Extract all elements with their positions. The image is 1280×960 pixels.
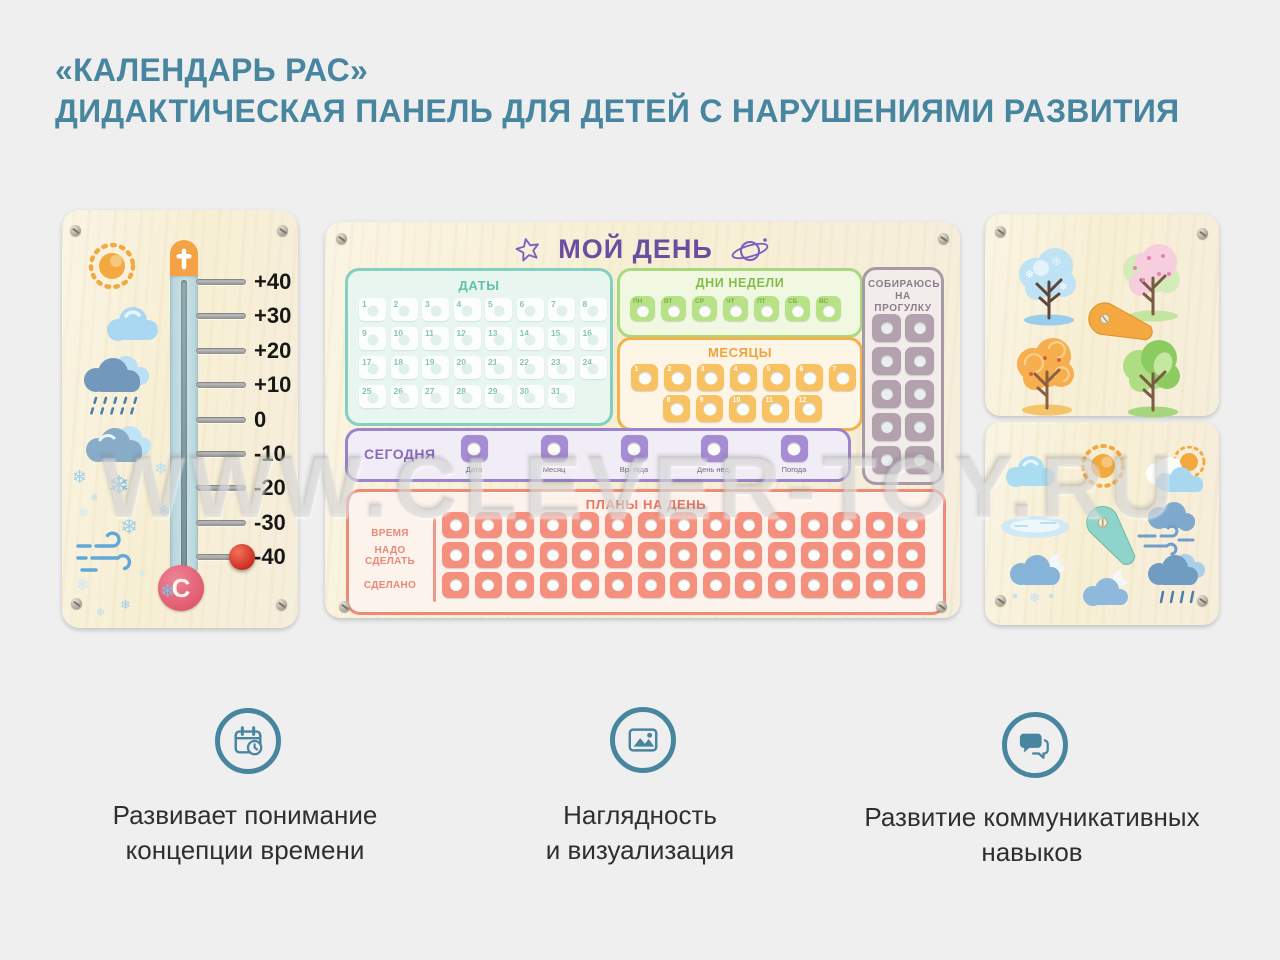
snowflake-icon: ❄ (78, 506, 89, 519)
peg-hole (547, 549, 559, 561)
plans-slot-r1c11[interactable] (768, 512, 795, 538)
month-tile-3[interactable]: 3 (697, 364, 724, 391)
plans-slot-r2c3[interactable] (507, 542, 534, 568)
peg-hole (881, 388, 893, 400)
snowflake-icon: ❄ (96, 608, 105, 619)
date-tile-30[interactable]: 30 (517, 385, 544, 408)
date-tile-31[interactable]: 31 (548, 385, 575, 408)
plans-slot-r2c13[interactable] (833, 542, 860, 568)
peg-hole (803, 371, 816, 384)
today-label: СЕГОДНЯ (364, 446, 436, 462)
date-tile-13[interactable]: 13 (485, 327, 512, 350)
peg-hole (808, 549, 820, 561)
peg-hole (367, 305, 378, 316)
snowflake-icon: ❄ (76, 578, 89, 594)
plans-row-label-time: ВРЕМЯ (354, 528, 426, 539)
dates-grid: 1234567891011121314151617181920212223242… (359, 298, 607, 408)
peg-hole (430, 392, 441, 403)
peg-hole (873, 579, 885, 591)
weekday-tile-ВТ[interactable]: ВТ (661, 296, 686, 321)
date-tile-20[interactable]: 20 (454, 356, 481, 379)
date-tile-6[interactable]: 6 (517, 298, 544, 321)
peg-hole (547, 519, 559, 531)
peg-hole (841, 519, 853, 531)
snowflake-icon: ❄ (138, 570, 146, 580)
peg-hole (399, 334, 410, 345)
plans-slot-r2c15[interactable] (898, 542, 925, 568)
months-row-2: 89101112 (663, 395, 822, 422)
plans-row-label-todo: НАДО СДЕЛАТЬ (354, 545, 426, 567)
snow-night-cloud-icon: ❄ (1001, 550, 1071, 606)
month-number: 1 (635, 366, 639, 373)
peg-hole (873, 549, 885, 561)
peg-hole (743, 519, 755, 531)
plans-slot-r3c4[interactable] (540, 572, 567, 598)
board-title: МОЙ ДЕНЬ (558, 234, 713, 265)
peg-hole (462, 334, 473, 345)
month-tile-9[interactable]: 9 (696, 395, 723, 422)
month-tile-8[interactable]: 8 (663, 395, 690, 422)
plans-slot-r2c14[interactable] (866, 542, 893, 568)
thermo-scale-label: -40 (254, 544, 302, 570)
walk-slot-1[interactable] (872, 314, 901, 342)
date-tile-27[interactable]: 27 (422, 385, 449, 408)
month-tile-4[interactable]: 4 (730, 364, 757, 391)
weekday-tile-ЧТ[interactable]: ЧТ (723, 296, 748, 321)
peg-hole (802, 402, 815, 415)
peg-hole (914, 388, 926, 400)
date-tile-10[interactable]: 10 (391, 327, 418, 350)
date-tile-19[interactable]: 19 (422, 356, 449, 379)
date-tile-8[interactable]: 8 (580, 298, 607, 321)
plans-slot-r2c1[interactable] (442, 542, 469, 568)
peg-hole (678, 519, 690, 531)
screw (276, 599, 287, 610)
thermo-tick (196, 451, 246, 457)
peg-hole (775, 549, 787, 561)
peg-hole (914, 322, 926, 334)
today-field-label: День нед. (683, 465, 745, 474)
month-number: 5 (767, 366, 771, 373)
thermo-tick (196, 520, 246, 526)
month-tile-7[interactable]: 7 (829, 364, 856, 391)
date-tile-28[interactable]: 28 (454, 385, 481, 408)
plans-slot-r3c11[interactable] (768, 572, 795, 598)
cloud-icon (102, 302, 162, 344)
thermo-tick (196, 348, 246, 354)
walk-label: СОБИРАЮСЬ НА ПРОГУЛКУ (865, 279, 941, 315)
peg-hole (792, 305, 804, 317)
peg-hole (708, 442, 721, 455)
plans-slot-r2c7[interactable] (638, 542, 665, 568)
page-title-line2: ДИДАКТИЧЕСКАЯ ПАНЕЛЬ ДЛЯ ДЕТЕЙ С НАРУШЕН… (55, 91, 1179, 132)
plans-slot-r1c13[interactable] (833, 512, 860, 538)
weekday-tile-ВС[interactable]: ВС (816, 296, 841, 321)
snowflake-icon: ❄ (154, 462, 167, 478)
peg-hole (367, 392, 378, 403)
month-tile-5[interactable]: 5 (763, 364, 790, 391)
snowflake-icon: ❄ (120, 516, 138, 538)
plans-slot-r1c6[interactable] (605, 512, 632, 538)
thermo-scale-label: -10 (254, 441, 302, 467)
peg-hole (556, 392, 567, 403)
plans-slot-r3c14[interactable] (866, 572, 893, 598)
plans-slot-r3c12[interactable] (801, 572, 828, 598)
screw (995, 226, 1006, 237)
thermometer-tube (170, 276, 198, 576)
month-tile-2[interactable]: 2 (664, 364, 691, 391)
my-day-board: МОЙ ДЕНЬ ДАТЫ 12345678910111213141516171… (325, 222, 960, 618)
date-tile-11[interactable]: 11 (422, 327, 449, 350)
weekday-tile-ПТ[interactable]: ПТ (754, 296, 779, 321)
peg-hole (881, 421, 893, 433)
peg-hole (588, 305, 599, 316)
thermo-scale-label: +20 (254, 338, 302, 364)
peg-hole (699, 305, 711, 317)
page-title-line1: «КАЛЕНДАРЬ РАС» (55, 50, 1179, 91)
month-tile-11[interactable]: 11 (762, 395, 789, 422)
walk-slot-6[interactable] (905, 380, 934, 408)
walk-slot-8[interactable] (905, 413, 934, 441)
peg-hole (670, 402, 683, 415)
plans-slot-r2c11[interactable] (768, 542, 795, 568)
peg-hole (645, 579, 657, 591)
thermometer-cap (170, 240, 198, 278)
peg-hole (906, 519, 918, 531)
month-tile-6[interactable]: 6 (796, 364, 823, 391)
month-number: 3 (701, 366, 705, 373)
plans-slot-r3c6[interactable] (605, 572, 632, 598)
peg-hole (645, 549, 657, 561)
screw (71, 598, 82, 609)
today-field-5: Погода (763, 435, 825, 474)
thermo-scale-label: +40 (254, 269, 302, 295)
screw (938, 233, 949, 244)
seasons-panel: ❄❄❄ (985, 214, 1219, 416)
plans-slot-r1c3[interactable] (507, 512, 534, 538)
thermometer-slider-knob[interactable] (229, 544, 255, 570)
plans-slot-r1c1[interactable] (442, 512, 469, 538)
weekday-tile-СР[interactable]: СР (692, 296, 717, 321)
peg-hole (678, 549, 690, 561)
cross-icon (175, 246, 193, 272)
weekday-tile-ПН[interactable]: ПН (630, 296, 655, 321)
months-row-1: 1234567 (631, 364, 856, 391)
plans-slot-r2c10[interactable] (735, 542, 762, 568)
walk-slot-3[interactable] (872, 347, 901, 375)
screw (277, 225, 288, 236)
date-number: 7 (551, 299, 556, 309)
plans-slot-r3c2[interactable] (475, 572, 502, 598)
date-number: 6 (520, 299, 525, 309)
plans-grid (442, 512, 925, 598)
peg-hole (556, 334, 567, 345)
peg-hole (580, 519, 592, 531)
peg-hole (737, 371, 750, 384)
peg-hole (703, 402, 716, 415)
plans-slot-r3c3[interactable] (507, 572, 534, 598)
plans-section: ПЛАНЫ НА ДЕНЬ ВРЕМЯ НАДО СДЕЛАТЬ СДЕЛАНО (346, 489, 946, 615)
plans-slot-r2c9[interactable] (703, 542, 730, 568)
thermo-scale-label: +30 (254, 303, 302, 329)
puddle-icon (999, 514, 1071, 540)
screw (70, 225, 81, 236)
peg-hole (770, 371, 783, 384)
peg-hole (493, 363, 504, 374)
plans-slot-r1c10[interactable] (735, 512, 762, 538)
dates-section: ДАТЫ 12345678910111213141516171819202122… (345, 268, 613, 426)
thermometer-panel: +40+30+20+100-10-20-30-40 C ❄❄❄❄❄❄❄❄❄❄❄❄ (62, 210, 298, 628)
peg-hole (450, 579, 462, 591)
plans-slot-r2c5[interactable] (572, 542, 599, 568)
peg-hole (482, 519, 494, 531)
date-tile-24[interactable]: 24 (580, 356, 607, 379)
thermometer-groove (181, 280, 187, 570)
plans-slot-r2c4[interactable] (540, 542, 567, 568)
date-tile-12[interactable]: 12 (454, 327, 481, 350)
snowflake-icon: ❄ (108, 472, 130, 498)
peg-hole (823, 305, 835, 317)
date-tile-2[interactable]: 2 (391, 298, 418, 321)
peg-hole (430, 334, 441, 345)
svg-text:❄: ❄ (1051, 254, 1062, 269)
today-slot-2[interactable] (541, 435, 568, 462)
chat-bubbles-icon (1018, 728, 1052, 762)
thermo-scale-label: 0 (254, 407, 302, 433)
date-tile-3[interactable]: 3 (422, 298, 449, 321)
peg-hole (515, 579, 527, 591)
thermo-scale-label: -30 (254, 510, 302, 536)
peg-hole (645, 519, 657, 531)
screw (1197, 595, 1208, 606)
peg-hole (775, 519, 787, 531)
plans-slot-r3c13[interactable] (833, 572, 860, 598)
dates-label: ДАТЫ (348, 278, 610, 293)
weekday-abbr: ВТ (664, 298, 672, 305)
plans-slot-r1c2[interactable] (475, 512, 502, 538)
date-tile-18[interactable]: 18 (391, 356, 418, 379)
peg-hole (493, 392, 504, 403)
date-tile-29[interactable]: 29 (485, 385, 512, 408)
month-tile-1[interactable]: 1 (631, 364, 658, 391)
today-slot-3[interactable] (621, 435, 648, 462)
weekday-abbr: СР (695, 298, 704, 305)
date-tile-14[interactable]: 14 (517, 327, 544, 350)
screw (336, 233, 347, 244)
weekday-abbr: ПТ (757, 298, 766, 305)
today-field-4: День нед. (683, 435, 745, 474)
calendar-clock-icon (231, 724, 265, 758)
peg-hole (788, 442, 801, 455)
peg-hole (914, 421, 926, 433)
peg-hole (515, 549, 527, 561)
date-tile-7[interactable]: 7 (548, 298, 575, 321)
plans-slot-r3c1[interactable] (442, 572, 469, 598)
peg-hole (493, 305, 504, 316)
peg-hole (761, 305, 773, 317)
peg-hole (588, 363, 599, 374)
today-section: СЕГОДНЯ ДатаМесяцВр. годаДень нед.Погода (345, 428, 851, 482)
peg-hole (450, 519, 462, 531)
weekdays-section: ДНИ НЕДЕЛИ ПНВТСРЧТПТСБВС (617, 268, 863, 338)
peg-hole (704, 371, 717, 384)
plans-slot-r2c2[interactable] (475, 542, 502, 568)
walk-slot-7[interactable] (872, 413, 901, 441)
peg-hole (841, 579, 853, 591)
today-slot-1[interactable] (461, 435, 488, 462)
svg-text:❄: ❄ (1025, 269, 1034, 281)
screw (1197, 228, 1208, 239)
plans-slot-r3c5[interactable] (572, 572, 599, 598)
weekdays-row: ПНВТСРЧТПТСБВС (630, 296, 841, 321)
today-field-2: Месяц (523, 435, 585, 474)
plans-slot-r2c6[interactable] (605, 542, 632, 568)
peg-hole (841, 549, 853, 561)
plans-slot-r1c7[interactable] (638, 512, 665, 538)
date-tile-1[interactable]: 1 (359, 298, 386, 321)
thermo-tick (196, 279, 246, 285)
date-number: 3 (425, 299, 430, 309)
peg-hole (808, 519, 820, 531)
walk-slot-5[interactable] (872, 380, 901, 408)
walk-slot-9[interactable] (872, 446, 901, 474)
plans-slot-r2c8[interactable] (670, 542, 697, 568)
plans-row-label-done: СДЕЛАНО (354, 580, 426, 591)
peg-hole (914, 454, 926, 466)
date-number: 2 (394, 299, 399, 309)
plans-slot-r1c4[interactable] (540, 512, 567, 538)
plans-slot-r3c7[interactable] (638, 572, 665, 598)
peg-hole (580, 579, 592, 591)
winter-tree: ❄❄❄ (1009, 240, 1089, 326)
peg-hole (914, 355, 926, 367)
date-tile-26[interactable]: 26 (391, 385, 418, 408)
plans-label: ПЛАНЫ НА ДЕНЬ (349, 497, 943, 512)
peg-hole (710, 519, 722, 531)
weekday-abbr: ВС (819, 298, 828, 305)
weekday-abbr: ПН (633, 298, 642, 305)
peg-hole (515, 519, 527, 531)
peg-hole (556, 363, 567, 374)
peg-hole (482, 579, 494, 591)
peg-hole (775, 579, 787, 591)
peg-hole (612, 579, 624, 591)
date-tile-25[interactable]: 25 (359, 385, 386, 408)
walk-section: СОБИРАЮСЬ НА ПРОГУЛКУ (862, 267, 944, 485)
weekday-tile-СБ[interactable]: СБ (785, 296, 810, 321)
rain-cloud-icon (76, 350, 156, 426)
peg-hole (399, 363, 410, 374)
plans-slot-r1c15[interactable] (898, 512, 925, 538)
peg-hole (808, 579, 820, 591)
today-field-label: Дата (443, 465, 505, 474)
peg-hole (525, 392, 536, 403)
plans-slot-r1c14[interactable] (866, 512, 893, 538)
date-tile-23[interactable]: 23 (548, 356, 575, 379)
walk-slot-4[interactable] (905, 347, 934, 375)
thermo-tick (196, 417, 246, 423)
today-slot-5[interactable] (781, 435, 808, 462)
peg-hole (637, 305, 649, 317)
snowflake-icon: ❄ (160, 582, 175, 600)
date-tile-21[interactable]: 21 (485, 356, 512, 379)
date-tile-16[interactable]: 16 (580, 327, 607, 350)
date-tile-17[interactable]: 17 (359, 356, 386, 379)
snowflake-icon: ❄ (120, 598, 131, 611)
date-number: 1 (362, 299, 367, 309)
thermo-scale-label: -20 (254, 475, 302, 501)
plans-slot-r3c15[interactable] (898, 572, 925, 598)
snowflake-icon: ❄ (90, 494, 98, 504)
thermo-scale-label: +10 (254, 372, 302, 398)
plans-slot-r1c8[interactable] (670, 512, 697, 538)
svg-text:❄: ❄ (1029, 590, 1040, 605)
month-number: 7 (833, 366, 837, 373)
months-section: МЕСЯЦЫ 1234567 89101112 (617, 337, 863, 431)
peg-hole (628, 442, 641, 455)
date-number: 4 (457, 299, 462, 309)
peg-hole (525, 305, 536, 316)
feature-visual-badge (610, 707, 676, 773)
autumn-tree (1007, 330, 1087, 416)
planet-icon (729, 235, 771, 265)
peg-hole (580, 549, 592, 561)
peg-hole (612, 519, 624, 531)
thermo-tick (196, 382, 246, 388)
plans-slot-r3c10[interactable] (735, 572, 762, 598)
date-tile-4[interactable]: 4 (454, 298, 481, 321)
peg-hole (743, 549, 755, 561)
walk-slot-2[interactable] (905, 314, 934, 342)
plans-slot-r2c12[interactable] (801, 542, 828, 568)
plans-slot-r3c9[interactable] (703, 572, 730, 598)
plans-slot-r3c8[interactable] (670, 572, 697, 598)
screw (936, 601, 947, 612)
date-tile-9[interactable]: 9 (359, 327, 386, 350)
peg-hole (399, 392, 410, 403)
date-number: 9 (362, 328, 367, 338)
walk-grid (872, 314, 934, 474)
month-tile-12[interactable]: 12 (795, 395, 822, 422)
plans-slot-r1c5[interactable] (572, 512, 599, 538)
month-tile-10[interactable]: 10 (729, 395, 756, 422)
date-tile-15[interactable]: 15 (548, 327, 575, 350)
date-tile-22[interactable]: 22 (517, 356, 544, 379)
date-number: 5 (488, 299, 493, 309)
weekdays-label: ДНИ НЕДЕЛИ (620, 276, 860, 290)
plans-slot-r1c12[interactable] (801, 512, 828, 538)
walk-slot-10[interactable] (905, 446, 934, 474)
peg-hole (367, 334, 378, 345)
peg-hole (678, 579, 690, 591)
feature-communication-badge (1002, 712, 1068, 778)
today-field-label: Месяц (523, 465, 585, 474)
date-number: 8 (583, 299, 588, 309)
today-field-1: Дата (443, 435, 505, 474)
months-label: МЕСЯЦЫ (620, 345, 860, 360)
plans-slot-r1c9[interactable] (703, 512, 730, 538)
screw (339, 601, 350, 612)
today-slot-4[interactable] (701, 435, 728, 462)
peg-hole (525, 363, 536, 374)
peg-hole (588, 334, 599, 345)
month-number: 8 (667, 397, 671, 404)
date-tile-5[interactable]: 5 (485, 298, 512, 321)
peg-hole (399, 305, 410, 316)
month-number: 2 (668, 366, 672, 373)
sun-icon (1071, 434, 1135, 498)
feature-calendar-badge (215, 708, 281, 774)
